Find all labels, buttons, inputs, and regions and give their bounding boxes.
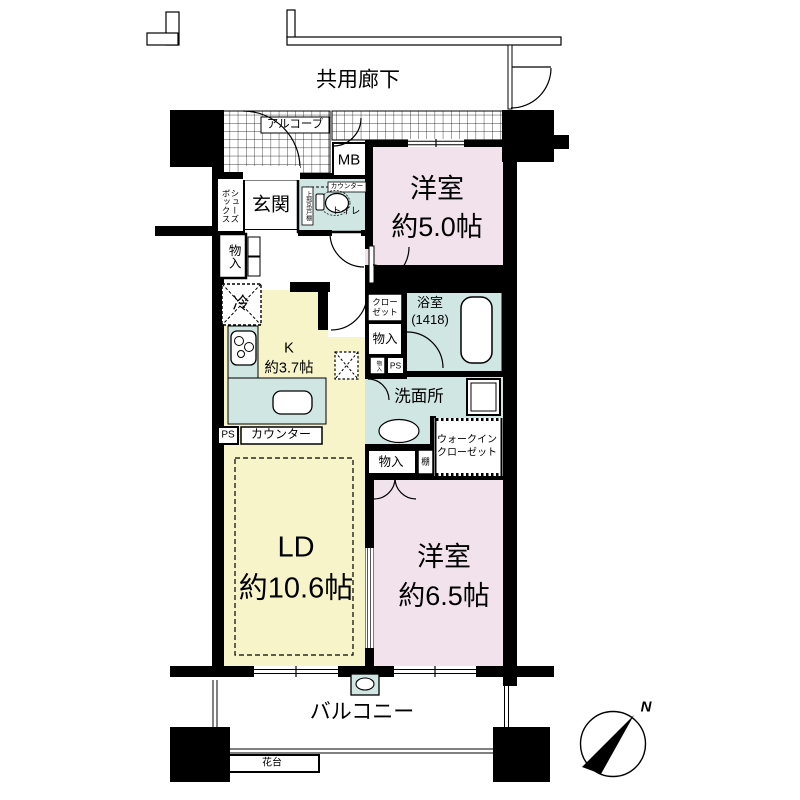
toilet-upper-cabinet-label: 上部吊戸棚 — [304, 188, 310, 224]
hall-dashed-x-box — [335, 352, 358, 379]
storage-door-leaf — [248, 257, 260, 276]
stove-icon — [231, 331, 256, 365]
bedroom2-storage-label: 物入 — [378, 454, 403, 470]
bathtub-icon — [461, 297, 492, 363]
window-bedroom1-top — [408, 139, 464, 147]
divider-sliding-door — [366, 548, 374, 648]
shoe-box-label: シューズ ボックス — [221, 181, 239, 231]
compass — [581, 712, 646, 777]
bathroom-label: 浴室 (1418) — [411, 295, 449, 329]
wic-label: ウォークイン クローゼット — [437, 435, 497, 460]
kitchen-counter-label: カウンター — [251, 427, 311, 443]
wall-right — [503, 110, 517, 686]
refrigerator-label: 冷 — [233, 293, 250, 315]
washroom-label: 洗面所 — [394, 386, 444, 407]
bedroom1-label: 洋室 約5.0帖 — [391, 171, 483, 247]
toilet-counter-label: カウンター — [331, 183, 364, 191]
wall-toilet-bottom-b — [361, 230, 368, 236]
corridor-outline — [147, 10, 561, 109]
hall-storage-label: 物入 — [372, 331, 397, 347]
kitchen-label: K 約3.7帖 — [264, 339, 313, 378]
washing-machine-pan-icon — [379, 420, 419, 443]
alcove-label: アルコーブ — [267, 118, 323, 133]
toilet-door-arc — [330, 233, 364, 267]
hall-closet-label: クロー ゼット — [372, 297, 398, 317]
pillar-top-left — [170, 110, 217, 167]
shelf-label: 棚 — [421, 456, 430, 467]
wall-fin-left — [155, 226, 215, 236]
living-dining-label: LD 約10.6帖 — [239, 527, 353, 608]
kitchen-ps-label: PS — [221, 429, 234, 442]
entrance-storage-label: 物入 — [226, 240, 239, 272]
pillar-bottom-left — [170, 727, 230, 782]
compass-north-label: N — [641, 697, 652, 717]
corridor-door-arc — [511, 68, 551, 108]
washbasin-icon — [467, 379, 500, 415]
balcony-label: バルコニー — [310, 698, 415, 725]
pillar-bottom-right — [493, 727, 550, 782]
wall-bottom-3 — [476, 666, 554, 677]
window-living-bottom — [254, 666, 338, 677]
flower-stand-label: 花台 — [262, 757, 282, 770]
toilet-label: トイレ — [332, 206, 361, 218]
genkan-label: 玄関 — [252, 194, 290, 219]
floor-plan: 共用廊下 アルコーブ MB 玄関 シューズ ボックス トイレ カウンター 上部吊… — [0, 0, 800, 800]
window-bedroom2-bottom — [394, 666, 476, 677]
wall-hall-vertical — [318, 282, 328, 330]
utility-sink-icon — [351, 674, 379, 695]
hall-ps-label: PS — [390, 360, 401, 371]
corridor-label: 共用廊下 — [316, 66, 400, 93]
meter-box-label: MB — [338, 150, 361, 170]
hall-storage-small-label: 物入 — [375, 358, 381, 373]
wall-band-bath — [365, 265, 503, 293]
bedroom2-label: 洋室 約6.5帖 — [398, 538, 490, 616]
kitchen-sink-icon — [273, 391, 312, 414]
storage-door-leaf — [248, 237, 260, 256]
wall-nub-right — [553, 135, 569, 149]
wall-bottom-1 — [212, 666, 254, 677]
wall-toilet-bottom-a — [298, 230, 332, 236]
